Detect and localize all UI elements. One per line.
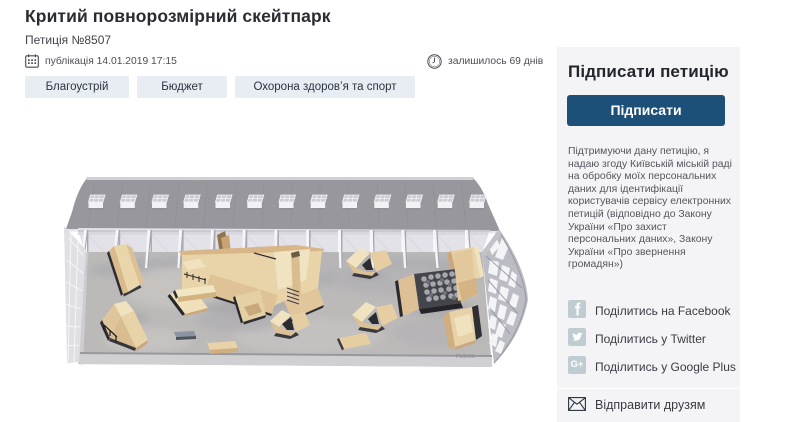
svg-text:PIXERS: PIXERS: [456, 354, 475, 360]
